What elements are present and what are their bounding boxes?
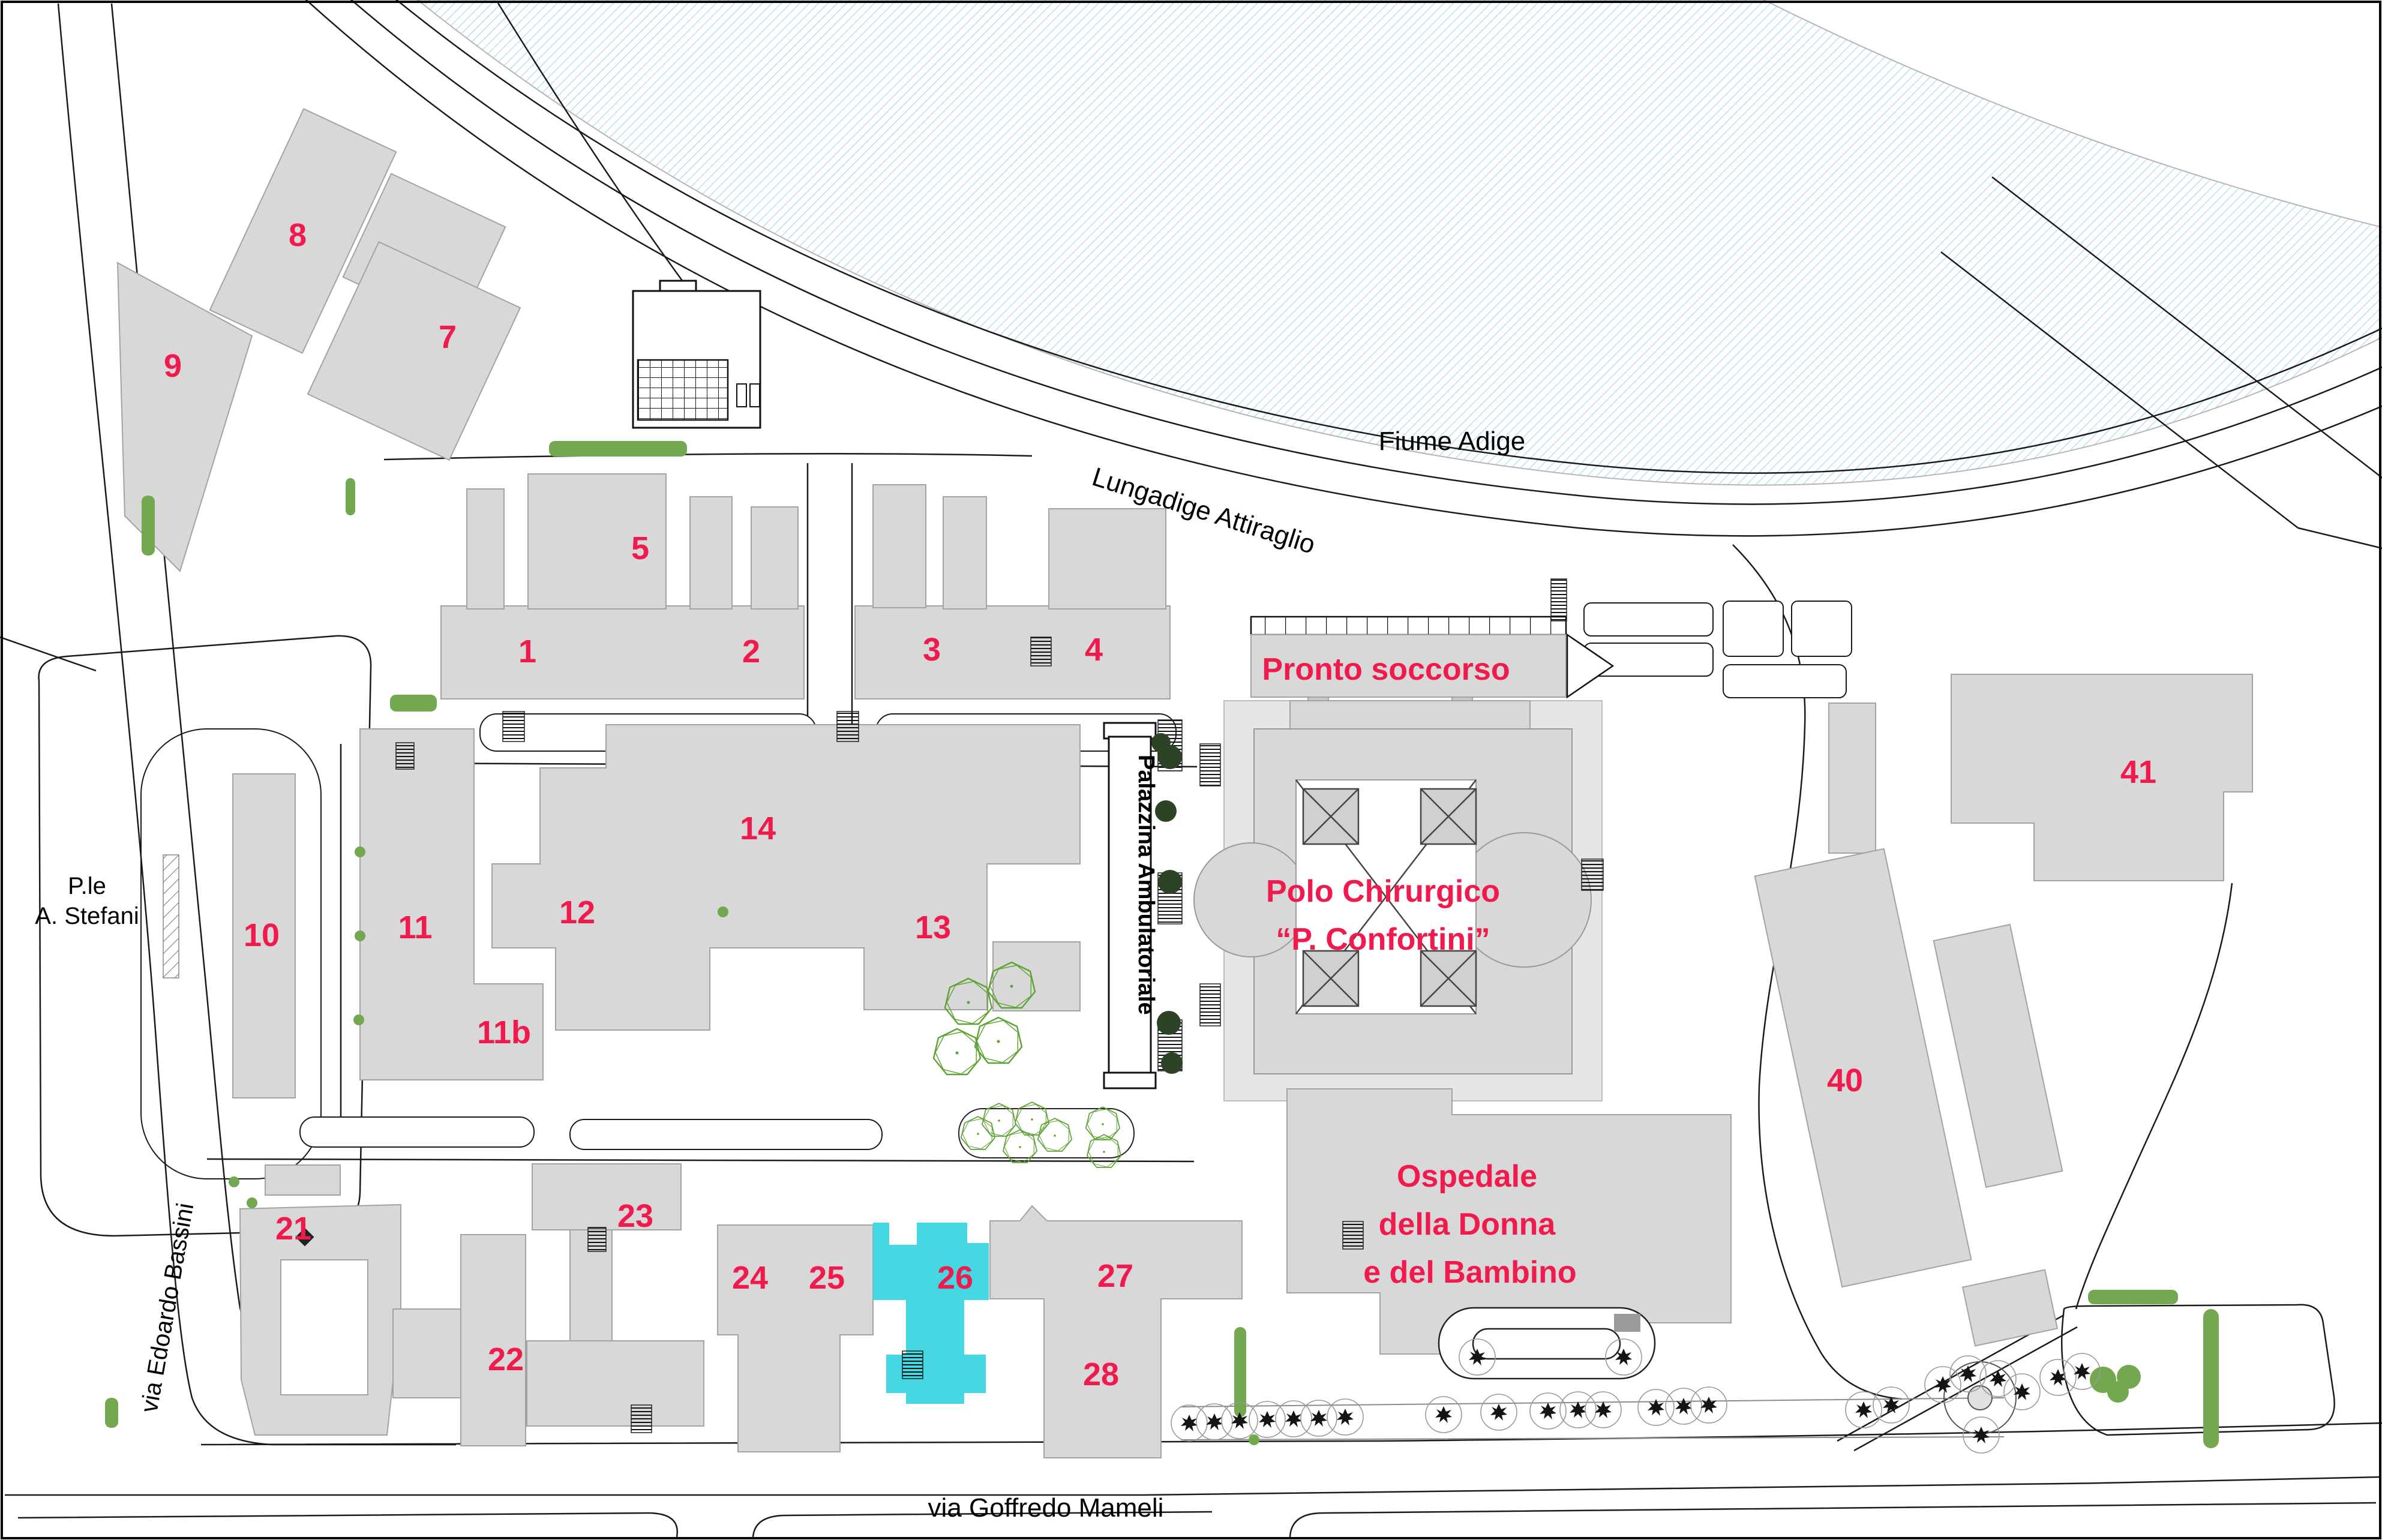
building-5-wing-d	[751, 507, 798, 609]
building-number-4: 4	[1085, 632, 1103, 668]
building-22-footprint	[461, 1235, 526, 1446]
building-number-3: 3	[923, 632, 941, 668]
building-number-26: 26	[937, 1260, 973, 1296]
building-21-courtyard	[281, 1260, 368, 1395]
building-number-40: 40	[1827, 1062, 1863, 1098]
palazzina-label: Palazzina Ambulatoriale	[1133, 755, 1159, 1015]
building-number-11: 11	[398, 909, 432, 945]
building-number-5: 5	[631, 530, 649, 566]
building-number-1: 1	[518, 634, 536, 670]
river-label: Fiume Adige	[1379, 427, 1526, 456]
building-12-13-14-footprint	[492, 725, 1080, 1030]
piazzale-label-line2: A. Stefani	[35, 903, 139, 929]
building-13-east-lobe	[993, 942, 1080, 1011]
building-number-24: 24	[732, 1260, 768, 1296]
building-number-10: 10	[244, 917, 280, 953]
street-label-mameli: via Goffredo Mameli	[928, 1493, 1164, 1523]
piazzale-label-line1: P.le	[68, 873, 106, 899]
building-40-south-annex	[1963, 1270, 2057, 1346]
polo-chirurgico-label-line2: “P. Confortini”	[1276, 922, 1490, 957]
building-23-south-block	[527, 1341, 704, 1426]
pronto-soccorso-label: Pronto soccorso	[1262, 652, 1510, 687]
building-41-footprint	[1951, 674, 2252, 881]
building-7-footprint-south	[308, 242, 520, 460]
campus-map-page: Fiume Adige Lungadige Attiraglio P.le A.…	[0, 0, 2382, 1540]
building-number-12: 12	[559, 894, 595, 930]
building-number-2: 2	[742, 634, 760, 670]
building-number-7: 7	[439, 319, 457, 355]
building-number-41: 41	[2120, 754, 2156, 790]
building-number-11b: 11b	[477, 1014, 531, 1050]
building-40-east-slab	[1934, 924, 2062, 1187]
building-22-wing	[393, 1309, 461, 1398]
building-5-wing-a	[467, 489, 504, 609]
bus-loop	[1439, 1308, 1655, 1379]
ospedale-donna-label-line1: Ospedale	[1397, 1159, 1537, 1194]
polo-chirurgico-label-line1: Polo Chirurgico	[1266, 874, 1500, 909]
building-number-27: 27	[1097, 1258, 1133, 1294]
building-21-annex	[265, 1165, 340, 1195]
building-3-wing-a	[873, 485, 926, 608]
building-number-28: 28	[1083, 1356, 1119, 1392]
grid-roof-building	[633, 281, 760, 428]
building-26-footprint-highlighted	[873, 1223, 989, 1404]
building-number-13: 13	[915, 909, 951, 945]
building-number-25: 25	[809, 1260, 845, 1296]
building-3-4-slab	[855, 606, 1170, 699]
building-number-21: 21	[275, 1211, 311, 1247]
ospedale-donna-label-line3: e del Bambino	[1363, 1255, 1576, 1290]
building-40-arm	[1829, 703, 1876, 853]
building-number-23: 23	[617, 1198, 653, 1234]
building-23-footprint	[532, 1164, 681, 1230]
building-number-14: 14	[740, 810, 776, 846]
building-27-28-footprint	[990, 1206, 1242, 1458]
building-5-wing-c	[690, 497, 732, 609]
building-4-wing	[1049, 509, 1166, 609]
building-number-8: 8	[289, 217, 307, 253]
building-3-wing-b	[943, 497, 986, 609]
building-number-9: 9	[164, 348, 182, 384]
building-number-22: 22	[488, 1341, 524, 1377]
campus-map: Fiume Adige Lungadige Attiraglio P.le A.…	[0, 0, 2382, 1540]
ospedale-donna-label-line2: della Donna	[1379, 1207, 1556, 1242]
building-24-25-footprint	[718, 1225, 873, 1452]
